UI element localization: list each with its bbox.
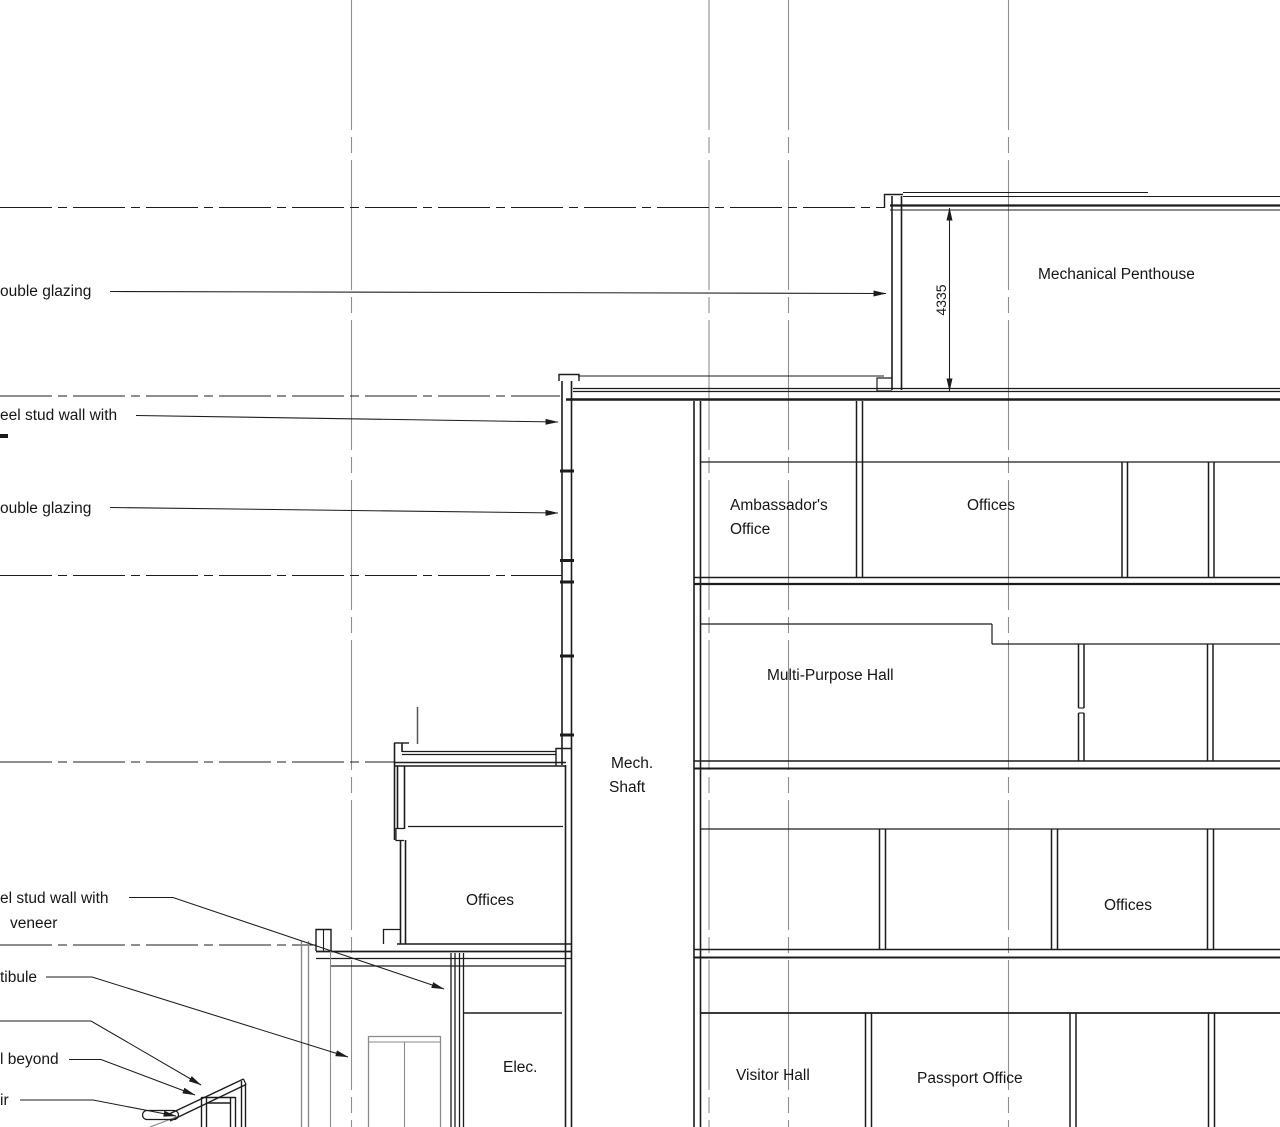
entry-step <box>150 1117 178 1127</box>
double-glazing-lower-leader <box>110 508 558 514</box>
room-label-offices-right: Offices <box>1104 897 1152 915</box>
annotation-stair: ir <box>0 1092 9 1110</box>
vestibule-leader <box>46 977 348 1057</box>
room-label-visitor-hall: Visitor Hall <box>736 1067 810 1085</box>
architectural-section-drawing: Mechanical Penthouse Ambassador's Office… <box>0 0 1280 1127</box>
entrance-canopy <box>143 1079 247 1127</box>
room-label-offices-left: Offices <box>466 892 514 910</box>
room-label-passport-office: Passport Office <box>917 1070 1023 1088</box>
annotation-wall-beyond: l beyond <box>0 1051 59 1069</box>
stair-leader <box>20 1100 176 1116</box>
steel-stud-lower-leader <box>129 898 444 990</box>
floor-datum-lines <box>0 208 884 946</box>
annotation-leaders <box>0 292 886 1117</box>
terrace-and-offices-wing <box>316 707 572 966</box>
dimension-4335-text: 4335 <box>933 284 949 315</box>
room-label-multi-purpose-hall: Multi-Purpose Hall <box>767 667 894 685</box>
mech-shaft-east-wall <box>694 401 701 1127</box>
elements-beyond <box>150 941 441 1127</box>
floor-slabs-and-ceilings <box>694 462 1280 1013</box>
room-label-elec: Elec. <box>503 1059 537 1077</box>
section-linework <box>0 0 1280 1127</box>
annotation-steel-stud-lower-line2: veneer <box>10 915 57 933</box>
room-label-offices-level4: Offices <box>967 497 1015 515</box>
room-label-mechanical-penthouse: Mechanical Penthouse <box>1038 266 1195 284</box>
partition-walls <box>857 401 1215 1127</box>
annotation-double-glazing-lower: ouble glazing <box>0 500 91 518</box>
room-label-mech-shaft-line2: Shaft <box>609 779 645 797</box>
entrance-door-frame <box>202 1097 236 1127</box>
room-label-mech-shaft-line1: Mech. <box>611 755 653 773</box>
wall-beyond-leader <box>69 1060 195 1096</box>
ground-floor-left-block <box>150 941 562 1127</box>
stud-wall-with-veneer <box>451 953 464 1127</box>
annotation-vestibule: tibule <box>0 969 37 987</box>
annotation-double-glazing-upper: ouble glazing <box>0 283 91 301</box>
annotation-steel-stud-upper-line2-fragment <box>0 434 8 438</box>
steel-stud-upper-leader <box>136 416 558 423</box>
annotation-steel-stud-upper: eel stud wall with <box>0 407 117 425</box>
room-label-ambassadors-office-line1: Ambassador's <box>730 497 828 515</box>
double-glazing-upper-leader <box>110 292 886 294</box>
main-roof <box>566 376 1280 400</box>
annotation-steel-stud-lower-line1: el stud wall with <box>0 890 109 908</box>
tower-west-wall <box>559 375 579 1127</box>
room-label-ambassadors-office-line2: Office <box>730 521 770 539</box>
